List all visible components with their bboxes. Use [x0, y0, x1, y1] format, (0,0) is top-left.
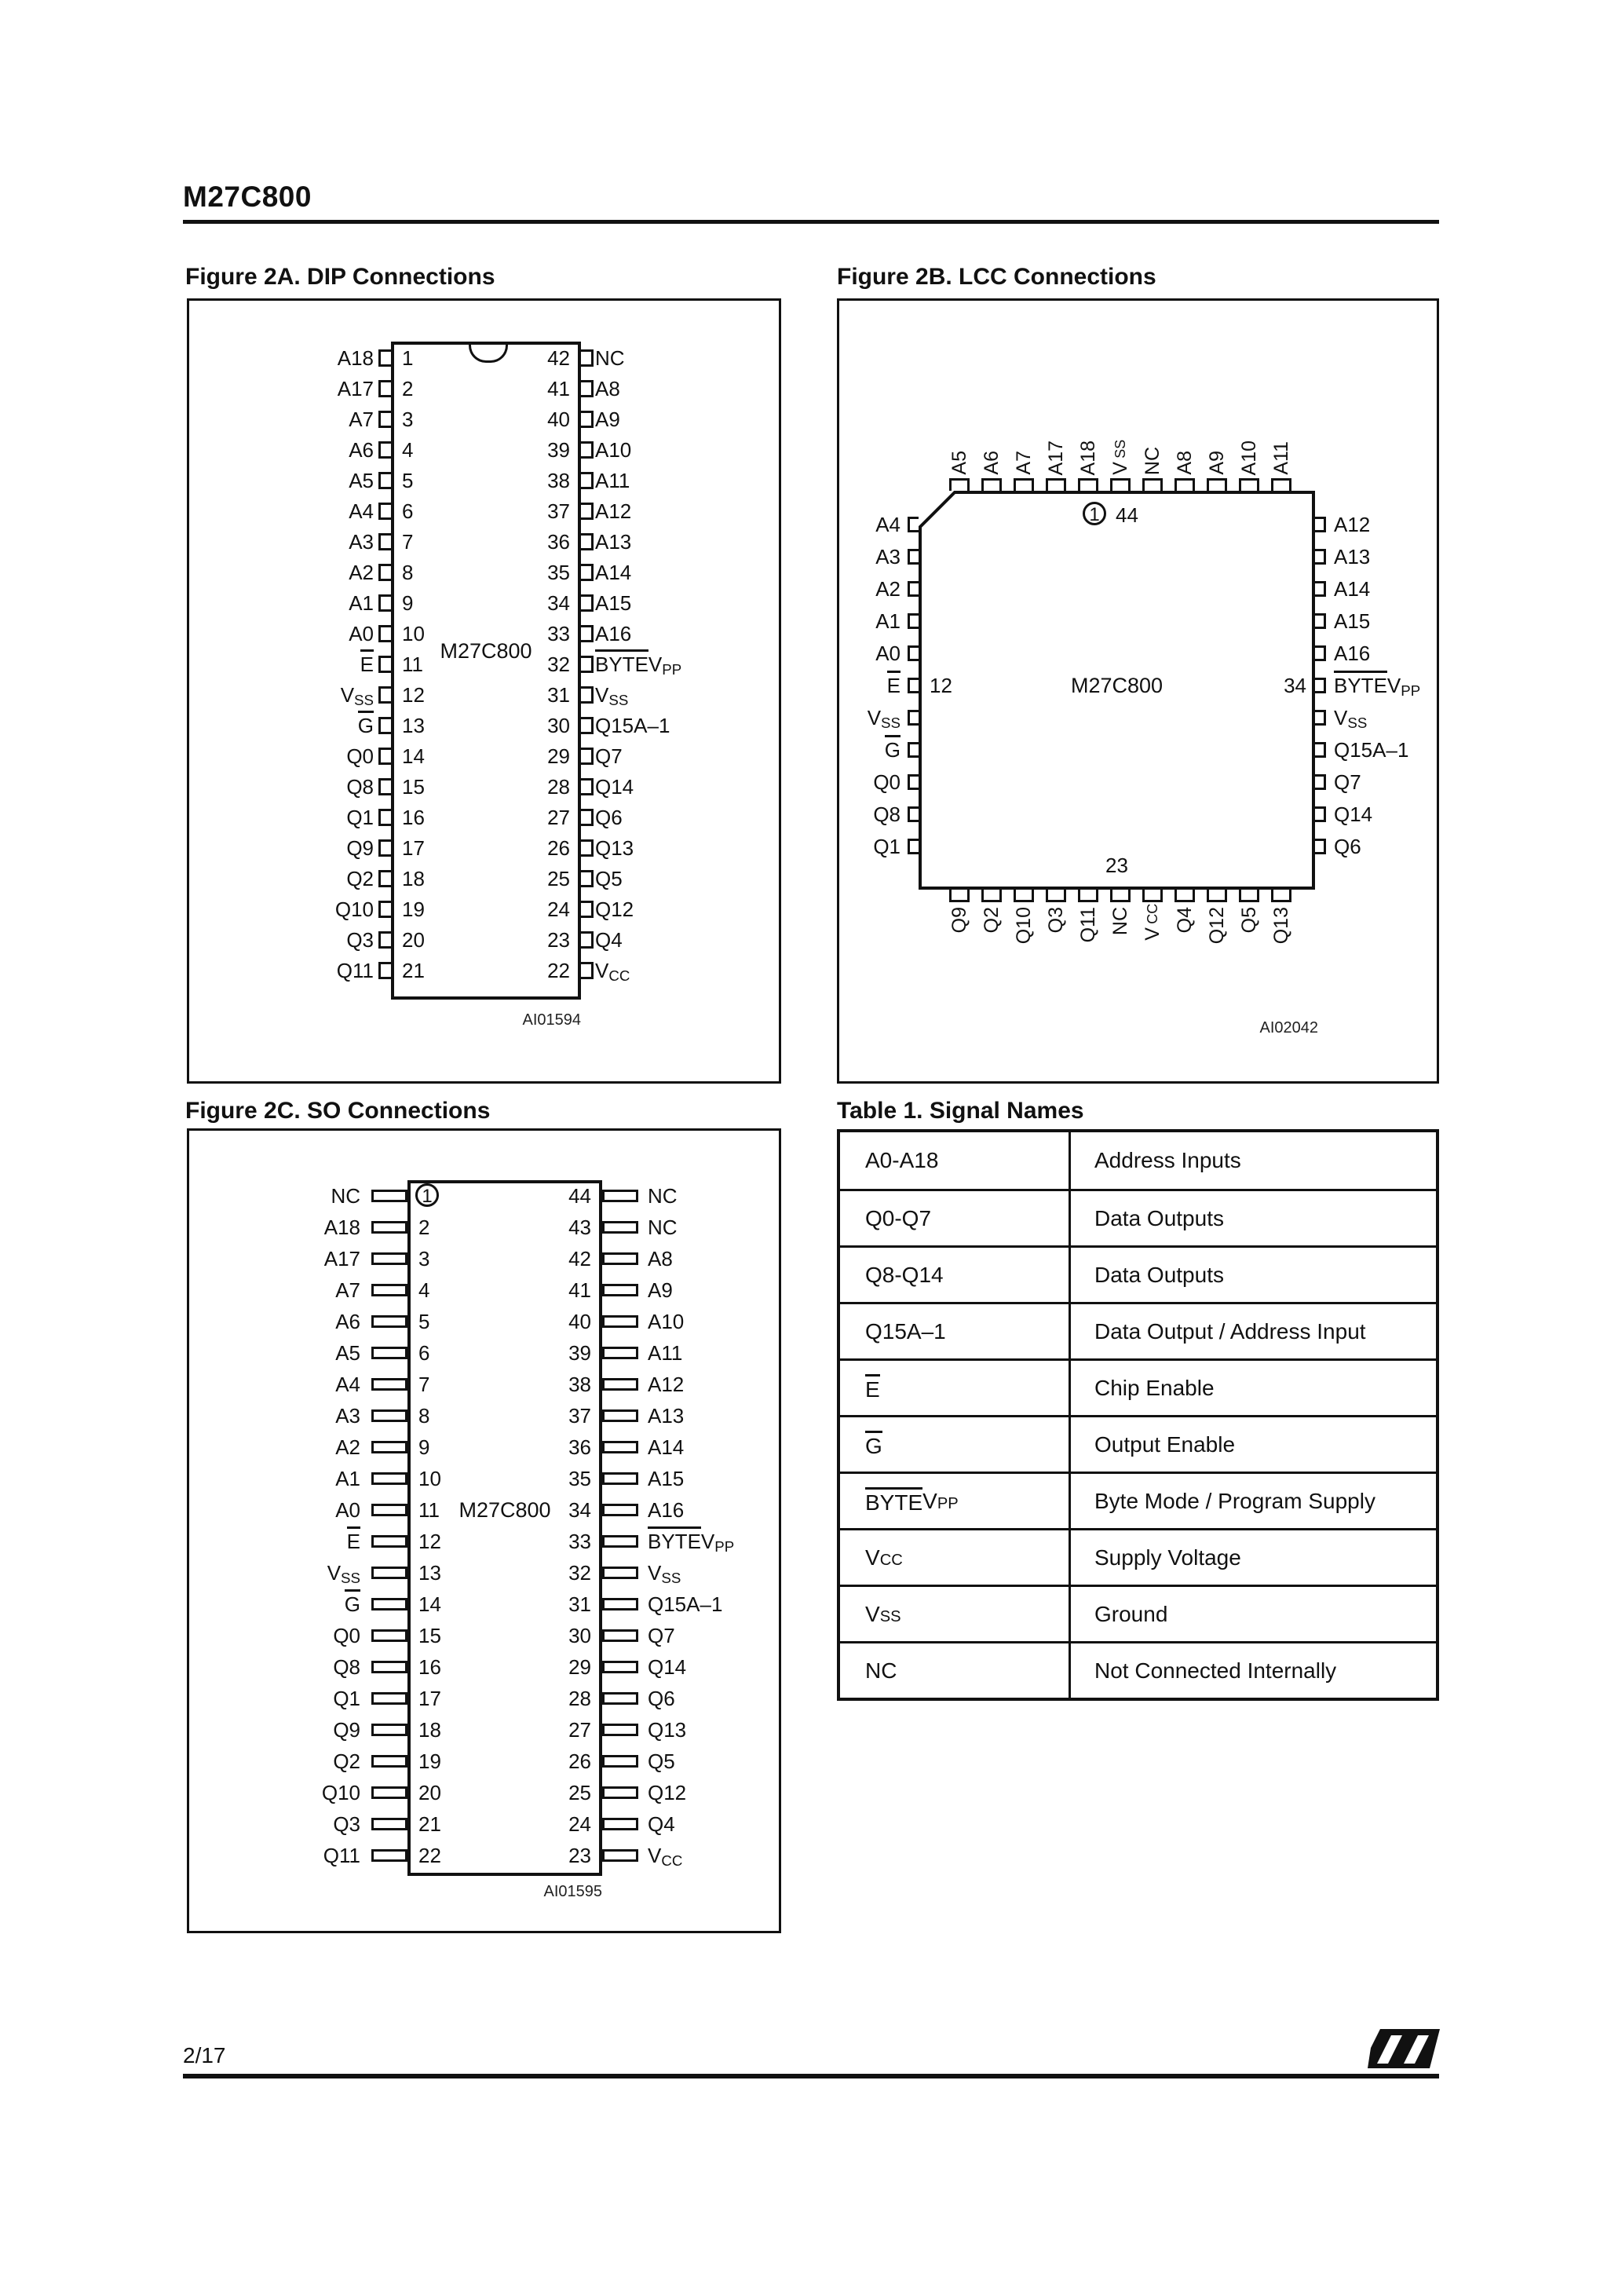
- st-logo: [1368, 2029, 1440, 2071]
- so-pin-number: 43: [527, 1216, 591, 1239]
- table-row: EChip Enable: [840, 1358, 1436, 1415]
- so-pin-lead: [371, 1409, 407, 1422]
- lcc-pin-lead: [1271, 890, 1291, 902]
- so-pin-label: Q8: [189, 1655, 360, 1679]
- lcc-pin-lead: [1014, 890, 1034, 902]
- so-pin-lead: [371, 1849, 407, 1862]
- so-pin-label: E: [189, 1530, 360, 1553]
- lcc-pin-label: A15: [1334, 609, 1370, 633]
- lcc-pin-label-text: A8: [1174, 451, 1196, 475]
- lcc-pin-lead: [1110, 478, 1131, 491]
- lcc-pin-lead: [908, 549, 919, 565]
- so-pin-number: 26: [527, 1749, 591, 1773]
- so-pin-number: 27: [527, 1718, 591, 1742]
- lcc-pin-label: G: [839, 738, 901, 762]
- so-pin-label: VSS: [648, 1561, 681, 1587]
- dip-pin-number: 19: [402, 898, 425, 921]
- dip-pin-label: A12: [595, 499, 631, 523]
- dip-pin-label: A13: [595, 530, 631, 554]
- so-pin-lead: [602, 1441, 638, 1453]
- table-row: VSSGround: [840, 1585, 1436, 1641]
- lcc-pin-lead: [1142, 890, 1163, 902]
- so-pin-label: Q1: [189, 1687, 360, 1710]
- lcc-pin-label: A7: [1012, 370, 1036, 475]
- so-pin-lead: [602, 1661, 638, 1673]
- so-pin-label: A13: [648, 1404, 684, 1428]
- lcc-pin-lead: [981, 478, 1002, 491]
- so-pin-number: 2: [418, 1216, 429, 1239]
- dip-pin-lead: [378, 564, 391, 581]
- dip-pin-lead: [581, 809, 594, 826]
- so-pin-number: 37: [527, 1404, 591, 1428]
- dip-pin-label: A6: [189, 438, 374, 462]
- so-pin-label: VCC: [648, 1844, 682, 1870]
- lcc-pin-label: Q8: [839, 803, 901, 826]
- so-pin-label: VSS: [189, 1561, 360, 1587]
- dip-pin-number: 7: [402, 530, 413, 554]
- dip-pin-lead: [378, 533, 391, 550]
- lcc-pin-label: A1: [839, 609, 901, 633]
- lcc-pin-label: NC: [1109, 907, 1132, 1017]
- lcc-pin-label-text: A9: [1207, 451, 1228, 475]
- so-pin-label: A2: [189, 1435, 360, 1459]
- lcc-pin-label: Q5: [1237, 907, 1261, 1017]
- lcc-pin-label-text: Q2: [981, 907, 1003, 933]
- lcc-pin-label-text: Q4: [1174, 907, 1196, 933]
- dip-pin-number: 22: [503, 959, 570, 982]
- dip-pin-number: 18: [402, 867, 425, 890]
- lcc-pin-number: 23: [919, 854, 1315, 877]
- so-pin-number: 18: [418, 1718, 441, 1742]
- lcc-pin-lead: [1315, 710, 1326, 726]
- signal-description-cell: Address Inputs: [1071, 1132, 1436, 1189]
- dip-pin-label: A10: [595, 438, 631, 462]
- dip-pin-label: A1: [189, 591, 374, 615]
- lcc-pin-label-text: Q12: [1207, 907, 1228, 944]
- lcc-pin-lead: [1207, 478, 1227, 491]
- so-pin-number: 21: [418, 1812, 441, 1836]
- so-pin-lead: [602, 1378, 638, 1391]
- dip-pin-lead: [378, 901, 391, 918]
- dip-pin-lead: [581, 717, 594, 734]
- signal-description-cell: Not Connected Internally: [1071, 1643, 1436, 1698]
- so-pin-number: 13: [418, 1561, 441, 1585]
- lcc-pin-lead: [908, 645, 919, 661]
- dip-pin-label: Q2: [189, 867, 374, 890]
- lcc-pin-lead: [1315, 742, 1326, 758]
- so-pin-number: 7: [418, 1373, 429, 1396]
- so-pin-label: A16: [648, 1498, 684, 1522]
- dip-pin-label: E: [189, 653, 374, 676]
- figure-2b-box: A5A6A7A17A18VSSNCA8A9A10A11144A4A3A2A1A0…: [837, 298, 1439, 1084]
- so-pin-number: 10: [418, 1467, 441, 1490]
- lcc-pin-label: VCC: [1141, 907, 1164, 1017]
- so-pin-number: 16: [418, 1655, 441, 1679]
- lcc-pin-lead: [1315, 549, 1326, 565]
- so-pin-label: A15: [648, 1467, 684, 1490]
- dip-pin-lead: [378, 962, 391, 979]
- so-pin-lead: [371, 1190, 407, 1202]
- table-row: VCCSupply Voltage: [840, 1528, 1436, 1585]
- so-pin-label: A8: [648, 1247, 673, 1270]
- lcc-pin-lead: [1315, 581, 1326, 597]
- lcc-pin-lead: [981, 890, 1002, 902]
- dip-pin-number: 37: [503, 499, 570, 523]
- lcc-pin-label: A9: [1205, 370, 1229, 475]
- lcc-pin-lead: [1315, 839, 1326, 854]
- so-pin-label: Q15A–1: [648, 1592, 722, 1616]
- so-pin-lead: [371, 1535, 407, 1548]
- so-pin-number: 29: [527, 1655, 591, 1679]
- lcc-pin-label: A13: [1334, 545, 1370, 569]
- dip-pin-lead: [378, 778, 391, 795]
- so-pin-label: A4: [189, 1373, 360, 1396]
- dip-pin-number: 15: [402, 775, 425, 799]
- dip-pin-lead: [378, 748, 391, 765]
- dip-pin-number: 31: [503, 683, 570, 707]
- dip-pin-number: 14: [402, 744, 425, 768]
- table-1-title: Table 1. Signal Names: [837, 1098, 1084, 1124]
- so-pin-label: A9: [648, 1278, 673, 1302]
- dip-pin-lead: [378, 503, 391, 520]
- lcc-pin-label: Q12: [1205, 907, 1229, 1017]
- signal-name-cell: NC: [840, 1643, 1071, 1698]
- so-pin-lead: [371, 1221, 407, 1234]
- so-pin-label: Q6: [648, 1687, 675, 1710]
- lcc-pin-label-text: NC: [1142, 447, 1164, 475]
- figure-2a-box: A181A172A73A64A55A46A37A28A19A010E11VSS1…: [187, 298, 781, 1084]
- dip-pin-label: Q3: [189, 928, 374, 952]
- signal-name-cell: VCC: [840, 1530, 1071, 1585]
- dip-pin-number: 20: [402, 928, 425, 952]
- dip-pin-label: A2: [189, 561, 374, 584]
- figure-2c-box: NC1A182A173A74A65A56A47A38A29A110A011E12…: [187, 1128, 781, 1933]
- lcc-pin-label: A3: [839, 545, 901, 569]
- so-pin-label: A18: [189, 1216, 360, 1239]
- signal-description-cell: Chip Enable: [1071, 1361, 1436, 1415]
- lcc-pin-label-text: Q3: [1046, 907, 1067, 933]
- dip-pin-lead: [581, 656, 594, 673]
- lcc-pin-lead: [1315, 774, 1326, 790]
- so-pin-number: 35: [527, 1467, 591, 1490]
- so-pin-number: 39: [527, 1341, 591, 1365]
- dip-pin-number: 28: [503, 775, 570, 799]
- lcc-pin-lead: [908, 839, 919, 854]
- so-pin-label: Q9: [189, 1718, 360, 1742]
- so-pin-lead: [602, 1284, 638, 1296]
- dip-pin-lead: [581, 380, 594, 397]
- so-pin-number: 40: [527, 1310, 591, 1333]
- dip-pin-lead: [378, 594, 391, 612]
- dip-pin-lead: [581, 472, 594, 489]
- dip-pin-lead: [378, 809, 391, 826]
- so-pin-lead: [371, 1724, 407, 1736]
- dip-pin-label: VCC: [595, 959, 630, 985]
- dip-pin-lead: [378, 349, 391, 367]
- so-pin-label: Q5: [648, 1749, 675, 1773]
- so-pin-lead: [371, 1692, 407, 1705]
- dip-pin-lead: [378, 411, 391, 428]
- dip-pin-number: 35: [503, 561, 570, 584]
- lcc-pin-lead: [1315, 806, 1326, 822]
- signal-description-cell: Byte Mode / Program Supply: [1071, 1474, 1436, 1528]
- dip-pin-number: 34: [503, 591, 570, 615]
- dip-pin-lead: [378, 656, 391, 673]
- so-pin-label: BYTEVPP: [648, 1530, 734, 1556]
- dip-pin-label: Q15A–1: [595, 714, 670, 737]
- dip-pin-label: A0: [189, 622, 374, 645]
- signal-description-cell: Data Outputs: [1071, 1191, 1436, 1245]
- lcc-pin-label-text: VSS: [1110, 443, 1131, 475]
- so-pin-lead: [602, 1598, 638, 1610]
- dip-pin-number: 30: [503, 714, 570, 737]
- so-pin-label: A5: [189, 1341, 360, 1365]
- lcc-pin-lead: [1239, 478, 1259, 491]
- dip-pin-label: A7: [189, 408, 374, 431]
- lcc-pin-lead: [1110, 890, 1131, 902]
- lcc-pin-lead: [1078, 478, 1098, 491]
- signal-name-cell: Q15A–1: [840, 1304, 1071, 1358]
- signal-description-cell: Data Outputs: [1071, 1248, 1436, 1302]
- lcc-pin-label: A18: [1076, 370, 1100, 475]
- dip-pin-lead: [581, 503, 594, 520]
- dip-pin-number: 38: [503, 469, 570, 492]
- dip-pin-label: A14: [595, 561, 631, 584]
- dip-pin-number: 27: [503, 806, 570, 829]
- so-pin-label: A7: [189, 1278, 360, 1302]
- dip-pin-number: 40: [503, 408, 570, 431]
- lcc-pin-label: Q1: [839, 835, 901, 858]
- lcc-pin-lead: [1078, 890, 1098, 902]
- dip-pin-lead: [581, 931, 594, 949]
- table-row: BYTEVPPByte Mode / Program Supply: [840, 1472, 1436, 1528]
- so-pin-number: 19: [418, 1749, 441, 1773]
- so-chip-label: M27C800: [407, 1497, 602, 1523]
- dip-pin-lead: [581, 839, 594, 857]
- so-pin-label: Q7: [648, 1624, 675, 1647]
- signal-names-table: A0-A18Address InputsQ0-Q7Data OutputsQ8-…: [837, 1129, 1439, 1701]
- lcc-pin-label: A14: [1334, 577, 1370, 601]
- lcc-pin-label-text: VCC: [1142, 907, 1164, 941]
- so-pin-lead: [602, 1221, 638, 1234]
- dip-pin-number: 24: [503, 898, 570, 921]
- so-pin-number: 5: [418, 1310, 429, 1333]
- lcc-pin-lead: [908, 517, 919, 532]
- so-pin-number: 17: [418, 1687, 441, 1710]
- so-pin-number: 4: [418, 1278, 429, 1302]
- lcc-pin-label-text: Q11: [1078, 907, 1099, 942]
- dip-pin-number: 9: [402, 591, 413, 615]
- dip-pin-number: 26: [503, 836, 570, 860]
- so-pin-number: 9: [418, 1435, 429, 1459]
- dip-pin-label: VSS: [189, 683, 374, 709]
- lcc-pin-lead: [1271, 478, 1291, 491]
- lcc-pin-label: A10: [1237, 370, 1261, 475]
- dip-pin-number: 1: [402, 346, 413, 370]
- dip-pin-label: A17: [189, 377, 374, 400]
- so-pin-label: Q4: [648, 1812, 675, 1836]
- figure-2a-tag: AI01594: [391, 1011, 581, 1029]
- so-pin-label: Q0: [189, 1624, 360, 1647]
- dip-pin-number: 39: [503, 438, 570, 462]
- lcc-pin-number: 44: [1116, 503, 1138, 527]
- lcc-pin-label: VSS: [1334, 706, 1367, 732]
- dip-pin-number: 17: [402, 836, 425, 860]
- so-pin-label: A10: [648, 1310, 684, 1333]
- lcc-pin-label: Q2: [980, 907, 1003, 1017]
- lcc-pin-label: VSS: [1109, 370, 1132, 475]
- so-pin-lead: [602, 1315, 638, 1328]
- so-pin-lead: [371, 1786, 407, 1799]
- dip-pin-lead: [378, 380, 391, 397]
- header-rule: [183, 220, 1439, 224]
- lcc-pin-lead: [1046, 478, 1066, 491]
- so-pin-lead: [371, 1441, 407, 1453]
- so-pin-lead: [371, 1567, 407, 1579]
- dip-pin-label: Q6: [595, 806, 623, 829]
- dip-pin-lead: [378, 625, 391, 642]
- so-pin-lead: [371, 1378, 407, 1391]
- so-pin-lead: [371, 1315, 407, 1328]
- dip-pin-label: A15: [595, 591, 631, 615]
- dip-pin-label: VSS: [595, 683, 628, 709]
- lcc-pin-lead: [1142, 478, 1163, 491]
- footer-page-number: 2/17: [183, 2043, 226, 2068]
- so-pin-number: 28: [527, 1687, 591, 1710]
- dip-pin-lead: [581, 748, 594, 765]
- figure-2b-title: Figure 2B. LCC Connections: [837, 264, 1156, 291]
- dip-pin-lead: [581, 870, 594, 887]
- dip-pin-number: 25: [503, 867, 570, 890]
- signal-description-cell: Output Enable: [1071, 1417, 1436, 1472]
- lcc-pin-label: Q3: [1044, 907, 1068, 1017]
- table-row: Q15A–1Data Output / Address Input: [840, 1302, 1436, 1358]
- lcc-pin-label-text: A11: [1271, 441, 1292, 475]
- lcc-pin-label: NC: [1141, 370, 1164, 475]
- so-pin-number: 42: [527, 1247, 591, 1270]
- dip-pin-label: Q10: [189, 898, 374, 921]
- lcc-pin-label-text: Q10: [1014, 907, 1035, 944]
- lcc-pin-lead: [1174, 478, 1195, 491]
- dip-pin-lead: [581, 594, 594, 612]
- so-pin-number: 23: [527, 1844, 591, 1867]
- lcc-pin-label-text: Q5: [1239, 907, 1260, 933]
- signal-name-cell: A0-A18: [840, 1132, 1071, 1189]
- so-pin-lead: [602, 1472, 638, 1485]
- dip-pin-label: Q7: [595, 744, 623, 768]
- dip-pin-lead: [378, 717, 391, 734]
- dip-pin-number: 16: [402, 806, 425, 829]
- lcc-pin-label-text: NC: [1110, 907, 1131, 935]
- so-pin-label: Q11: [189, 1844, 360, 1867]
- lcc-pin-lead: [908, 581, 919, 597]
- so-pin-number: 25: [527, 1781, 591, 1804]
- dip-pin-lead: [581, 686, 594, 704]
- lcc-pin-label: A12: [1334, 513, 1370, 536]
- dip-pin-label: NC: [595, 346, 625, 370]
- lcc-pin-label: Q0: [839, 770, 901, 794]
- so-pin-lead: [371, 1818, 407, 1830]
- so-pin-label: NC: [648, 1216, 678, 1239]
- dip-pin-lead: [378, 686, 391, 704]
- dip-pin-label: BYTEVPP: [595, 653, 681, 678]
- figure-2b-tag: AI02042: [1075, 1019, 1318, 1036]
- signal-description-cell: Supply Voltage: [1071, 1530, 1436, 1585]
- signal-name-cell: Q8-Q14: [840, 1248, 1071, 1302]
- lcc-pin-label: VSS: [839, 706, 901, 732]
- lcc-pin-label: A4: [839, 513, 901, 536]
- so-pin-number: 41: [527, 1278, 591, 1302]
- lcc-pin-lead: [1014, 478, 1034, 491]
- signal-name-cell: VSS: [840, 1587, 1071, 1641]
- dip-pin-label: Q8: [189, 775, 374, 799]
- so-pin-lead: [371, 1755, 407, 1768]
- so-pin-label: A3: [189, 1404, 360, 1428]
- so-pin-label: A14: [648, 1435, 684, 1459]
- lcc-pin-lead: [1174, 890, 1195, 902]
- dip-pin-number: 5: [402, 469, 413, 492]
- lcc-pin-lead: [1315, 645, 1326, 661]
- so-pin-lead: [602, 1724, 638, 1736]
- datasheet-page: M27C800 Figure 2A. DIP Connections Figur…: [0, 0, 1622, 2296]
- lcc-pin-label: Q10: [1012, 907, 1036, 1017]
- dip-pin-label: A16: [595, 622, 631, 645]
- signal-description-cell: Data Output / Address Input: [1071, 1304, 1436, 1358]
- lcc-pin-label: Q7: [1334, 770, 1361, 794]
- so-pin-lead: [371, 1504, 407, 1516]
- table-row: Q0-Q7Data Outputs: [840, 1189, 1436, 1245]
- footer-rule: [183, 2074, 1439, 2078]
- lcc-pin-label: BYTEVPP: [1334, 674, 1420, 700]
- dip-pin-number: 13: [402, 714, 425, 737]
- lcc-pin-label-text: Q13: [1271, 907, 1292, 944]
- lcc-pin-label: A2: [839, 577, 901, 601]
- lcc-pin-label: A0: [839, 642, 901, 665]
- lcc-pin-lead: [908, 742, 919, 758]
- table-row: NCNot Connected Internally: [840, 1641, 1436, 1698]
- lcc-pin-label: Q14: [1334, 803, 1372, 826]
- so-pin-number: 44: [527, 1184, 591, 1208]
- so-pin-lead: [602, 1190, 638, 1202]
- so-pin-label: A11: [648, 1341, 682, 1365]
- dip-pin-number: 3: [402, 408, 413, 431]
- so-pin-label: G: [189, 1592, 360, 1616]
- so-pin-number: 24: [527, 1812, 591, 1836]
- so-pin-number: 31: [527, 1592, 591, 1616]
- dip-pin-number: 2: [402, 377, 413, 400]
- figure-2c-tag: AI01595: [407, 1883, 602, 1900]
- so-pin-number: 38: [527, 1373, 591, 1396]
- so-pin-label: A17: [189, 1247, 360, 1270]
- dip-pin-label: A9: [595, 408, 620, 431]
- lcc-pin-lead: [1046, 890, 1066, 902]
- dip-pin-number: 41: [503, 377, 570, 400]
- lcc-pin-label: A6: [980, 370, 1003, 475]
- dip-chip-label: M27C800: [391, 638, 581, 664]
- lcc-pin-label-text: A5: [949, 451, 970, 475]
- so-pin-lead: [371, 1252, 407, 1265]
- so-pin-lead: [602, 1252, 638, 1265]
- so-pin-lead: [371, 1347, 407, 1359]
- so-pin1-number: 1: [415, 1183, 439, 1207]
- so-pin-number: 12: [418, 1530, 441, 1553]
- lcc-pin-lead: [1239, 890, 1259, 902]
- so-pin-label: Q12: [648, 1781, 686, 1804]
- dip-pin-lead: [378, 441, 391, 459]
- dip-pin-label: Q11: [189, 959, 374, 982]
- dip-pin-label: Q1: [189, 806, 374, 829]
- lcc-pin-label-text: A6: [981, 451, 1003, 475]
